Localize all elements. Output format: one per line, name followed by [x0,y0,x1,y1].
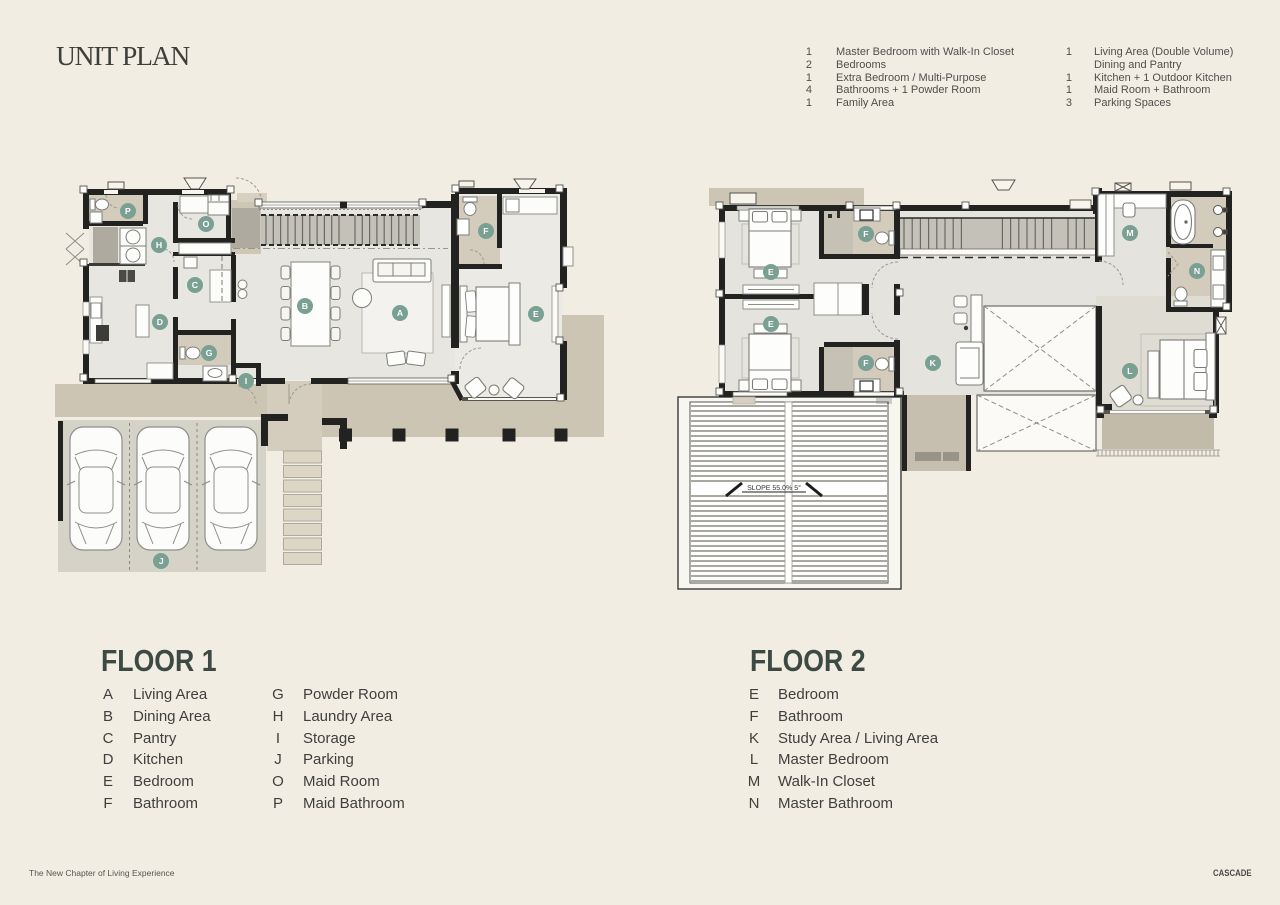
svg-text:SLOPE 55.0% 5°: SLOPE 55.0% 5° [747,484,801,492]
